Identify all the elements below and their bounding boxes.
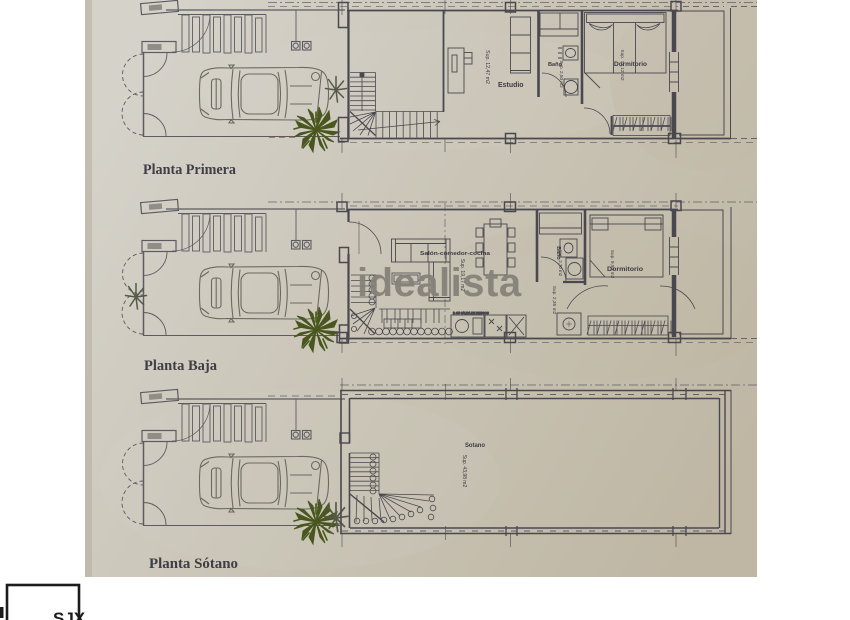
svg-text:P. SU SALIDA DE RIESGOS: P. SU SALIDA DE RIESGOS xyxy=(453,311,489,315)
svg-text:Salón-comedor-cocina: Salón-comedor-cocina xyxy=(420,251,491,257)
svg-text:Sotano: Sotano xyxy=(465,442,485,449)
svg-text:idealista: idealista xyxy=(357,261,522,305)
svg-text:Sup. 43,98 m2: Sup. 43,98 m2 xyxy=(461,455,467,488)
svg-text:Planta Baja: Planta Baja xyxy=(144,358,217,374)
svg-text:Sup. 9,93 m2: Sup. 9,93 m2 xyxy=(609,250,615,279)
svg-text:Dormitorio: Dormitorio xyxy=(614,61,647,68)
svg-text:Sup. 2,35 m2: Sup. 2,35 m2 xyxy=(551,286,557,315)
svg-text:Sup. 19,17 m2: Sup. 19,17 m2 xyxy=(459,259,465,292)
svg-text:Planta Primera: Planta Primera xyxy=(143,162,236,178)
svg-text:Planta Sótano: Planta Sótano xyxy=(149,556,238,572)
svg-text:Sup. 12,47 m2: Sup. 12,47 m2 xyxy=(484,50,490,84)
svg-text:Sup. 2,70 m2: Sup. 2,70 m2 xyxy=(558,250,563,277)
svg-text:Sup. 2,50 m2: Sup. 2,50 m2 xyxy=(559,60,564,88)
svg-text:SJX: SJX xyxy=(53,609,86,620)
svg-text:Sup. 13,12 m2: Sup. 13,12 m2 xyxy=(619,49,625,81)
svg-text:Estudio: Estudio xyxy=(498,80,524,89)
